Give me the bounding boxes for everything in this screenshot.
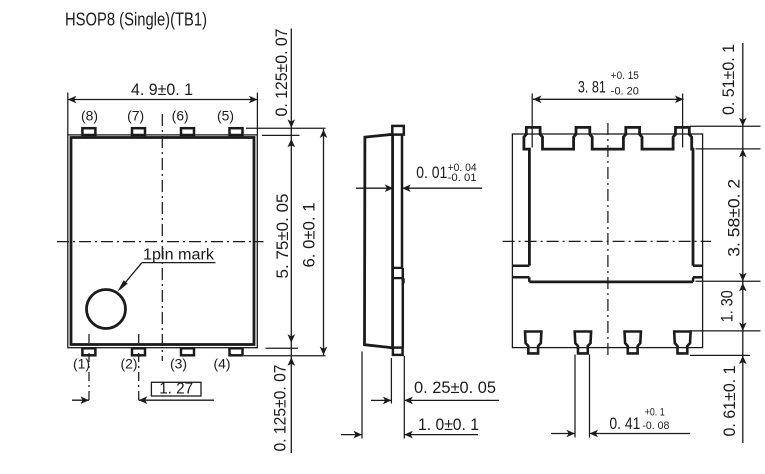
svg-text:0. 125±0. 07: 0. 125±0. 07 xyxy=(272,29,291,117)
svg-text:(2): (2) xyxy=(121,357,138,372)
svg-text:3. 58±0. 2: 3. 58±0. 2 xyxy=(725,179,744,257)
svg-text:0. 41: 0. 41 xyxy=(609,414,640,433)
svg-text:(5): (5) xyxy=(217,109,234,124)
svg-text:0. 01: 0. 01 xyxy=(416,163,447,182)
svg-text:-0. 08: -0. 08 xyxy=(642,420,669,432)
svg-text:0. 51±0. 1: 0. 51±0. 1 xyxy=(719,44,738,115)
svg-text:1. 0±0. 1: 1. 0±0. 1 xyxy=(418,415,479,434)
svg-text:0. 25±0. 05: 0. 25±0. 05 xyxy=(414,378,496,397)
svg-text:(6): (6) xyxy=(172,109,189,124)
svg-text:(7): (7) xyxy=(127,109,144,124)
svg-text:-0. 01: -0. 01 xyxy=(448,172,477,184)
svg-text:6. 0±0. 1: 6. 0±0. 1 xyxy=(300,203,319,268)
svg-text:(4): (4) xyxy=(214,357,231,372)
svg-text:(8): (8) xyxy=(81,109,98,124)
svg-text:0. 125±0. 07: 0. 125±0. 07 xyxy=(271,365,290,452)
svg-text:3. 81: 3. 81 xyxy=(578,78,606,97)
svg-text:0. 61±0. 1: 0. 61±0. 1 xyxy=(720,366,739,437)
svg-text:-0. 20: -0. 20 xyxy=(611,85,639,97)
svg-text:4. 9±0. 1: 4. 9±0. 1 xyxy=(131,80,193,99)
svg-text:+0. 15: +0. 15 xyxy=(611,70,639,82)
svg-text:1. 30: 1. 30 xyxy=(718,290,737,322)
svg-text:5. 75±0. 05: 5. 75±0. 05 xyxy=(273,194,292,279)
svg-text:1. 27: 1. 27 xyxy=(159,381,193,398)
svg-text:(1): (1) xyxy=(73,357,90,372)
svg-text:+0. 1: +0. 1 xyxy=(645,406,665,418)
svg-text:(3): (3) xyxy=(170,357,187,372)
svg-text:HSOP8 (Single)(TB1): HSOP8 (Single)(TB1) xyxy=(65,9,207,30)
svg-text:1pin mark: 1pin mark xyxy=(143,247,214,264)
